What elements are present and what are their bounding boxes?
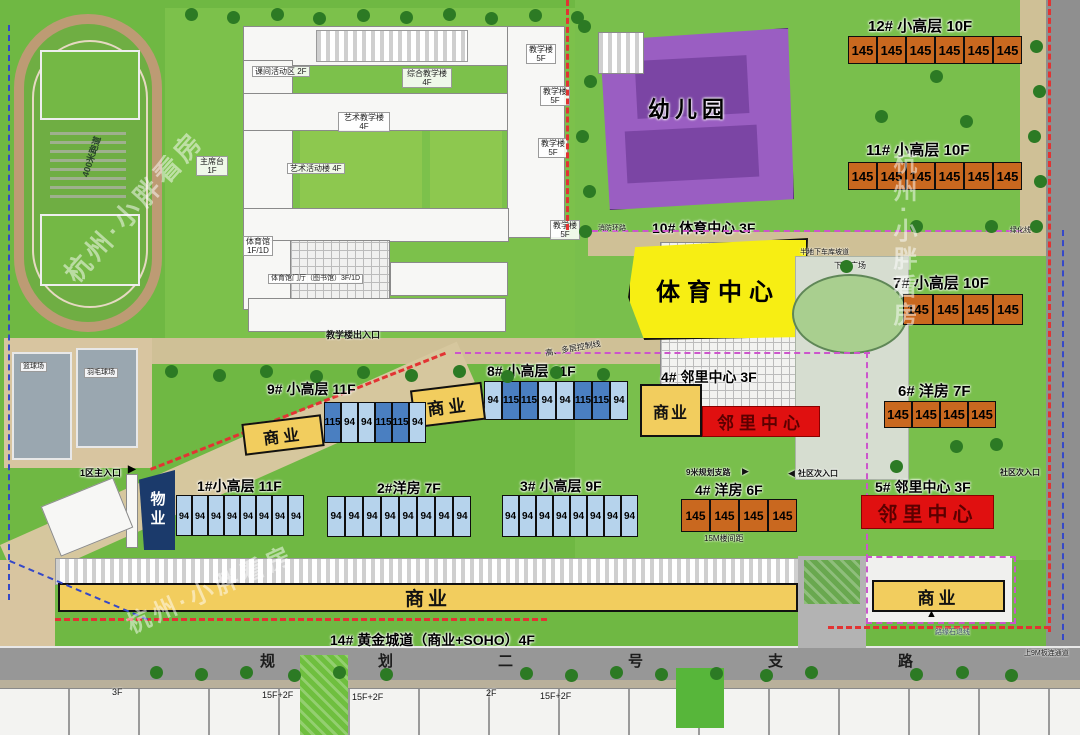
teach-text: 教学楼 (541, 139, 565, 148)
teach-text: 教学楼 (553, 221, 577, 230)
building-1-units: 9494949494949494 (176, 495, 304, 536)
tree-row-mid-road (165, 365, 178, 378)
unit-cell: 145 (681, 499, 710, 532)
board9m-label: 上9M板连通道 (1024, 648, 1069, 658)
building-1-label: 1#小高层 11F (197, 476, 282, 496)
curb-line-label: 路缘石退线 (935, 627, 970, 637)
school-label-teach-3: 教学楼5F (538, 138, 568, 158)
building-3-label: 3# 小高层 9F (520, 476, 602, 496)
school-label-gym: 体育馆1F/1D (243, 236, 273, 256)
unit-cell: 94 (363, 496, 381, 537)
red-line-kindergarten-west (566, 0, 569, 230)
blue-line-west (8, 25, 10, 600)
unit-cell: 145 (993, 36, 1022, 64)
south-green-plaza (300, 655, 348, 735)
arrow-up-marker: ▲ (926, 608, 937, 620)
unit-cell: 145 (993, 162, 1022, 190)
unit-cell: 145 (739, 499, 768, 532)
school-building-lower (243, 208, 509, 242)
teach-floor: 5F (560, 230, 569, 239)
soho-band (55, 558, 802, 585)
unit-cell: 94 (610, 381, 628, 420)
unit-cell: 115 (502, 381, 520, 420)
court-label-badminton: 羽毛球场 (84, 368, 118, 378)
unit-cell: 94 (341, 402, 358, 443)
teach-floor: 5F (550, 96, 559, 105)
neighborhood-4-box: 邻里中心 (702, 406, 820, 437)
court-label-basketball: 篮球场 (20, 362, 47, 372)
unit-cell: 94 (345, 496, 363, 537)
unit-cell: 94 (288, 495, 304, 536)
building-7-units: 145145145145 (903, 294, 1023, 325)
school-label-art-teach: 艺术教学楼4F (338, 112, 390, 132)
commercial-right-box: 商业 (872, 580, 1005, 612)
main-entrance-arrow: ▶ (128, 464, 136, 475)
unit-cell: 94 (621, 495, 638, 537)
art-teach-floor: 4F (359, 122, 368, 131)
unit-cell: 145 (848, 36, 877, 64)
teach-floor: 5F (548, 148, 557, 157)
unit-cell: 94 (240, 495, 256, 536)
south-road (0, 646, 1080, 684)
school-label-complex: 综合教学楼 4F (402, 68, 452, 88)
road9m-label: 9米规划支路 (686, 467, 730, 478)
building-9-units: 115949411511594 (324, 402, 426, 443)
building-6-units: 145145145145 (884, 401, 996, 428)
unit-cell: 115 (520, 381, 538, 420)
school-label-activity: 课间活动区 2F (252, 66, 310, 77)
unit-cell: 145 (963, 294, 993, 325)
building-4-units: 145145145145 (681, 499, 797, 532)
main-entrance-label: 1区主入口 (80, 466, 121, 479)
unit-cell: 94 (519, 495, 536, 537)
side-entrance-mid-label: 社区次入口 (798, 468, 838, 479)
unit-cell: 145 (933, 294, 963, 325)
unit-cell: 94 (409, 402, 426, 443)
school-building-left (243, 60, 293, 212)
school-label-teach-1: 教学楼5F (526, 44, 556, 64)
property-block: 物业 (139, 470, 175, 550)
south-sidewalk (0, 680, 1080, 688)
unit-cell: 94 (435, 496, 453, 537)
tree-cluster-right-community (930, 70, 943, 83)
spacing-15m-label: 15M楼间距 (704, 533, 744, 544)
unit-cell: 94 (587, 495, 604, 537)
unit-cell: 94 (553, 495, 570, 537)
garage-ramp-label: 半地下车库坡道 (800, 247, 849, 257)
unit-cell: 145 (912, 401, 940, 428)
unit-cell: 94 (208, 495, 224, 536)
school-label-exit: 教学楼出入口 (326, 328, 380, 341)
unit-cell: 94 (484, 381, 502, 420)
tree-row-south (150, 666, 163, 679)
building-12-label: 12# 小高层 10F (868, 15, 972, 36)
unit-cell: 145 (848, 162, 877, 190)
building-12-units: 145145145145145145 (848, 36, 1022, 64)
south-bld-15f-c: 15F+2F (540, 691, 571, 701)
unit-cell: 145 (877, 36, 906, 64)
neighborhood-5-box: 邻里中心 (861, 495, 994, 529)
road-name-char: 划 (378, 650, 393, 671)
teach-floor: 5F (536, 54, 545, 63)
unit-cell: 94 (224, 495, 240, 536)
road-name-char: 路 (898, 650, 913, 671)
south-bld-15f-a: 15F+2F (262, 690, 293, 700)
school-label-art-act: 艺术活动楼 4F (287, 163, 345, 174)
unit-cell: 94 (327, 496, 345, 537)
building-4-label: 4# 洋房 6F (695, 480, 763, 500)
school-label-gym-hall: 体育馆门厅（图书馆）3F/1D (268, 274, 363, 284)
fire-lane-label: 消防环路 (598, 223, 626, 233)
school-gym-building (290, 240, 390, 300)
unit-cell: 94 (417, 496, 435, 537)
school-label-stage: 主席台 1F (196, 156, 228, 176)
school-skylight (316, 30, 468, 62)
unit-cell: 145 (993, 294, 1023, 325)
art-teach-text: 艺术教学楼 (344, 113, 384, 122)
court-2 (76, 348, 138, 448)
unit-cell: 145 (964, 36, 993, 64)
building-11-units: 145145145145145145 (848, 162, 1022, 190)
green-line-label: 绿化线 (1010, 225, 1031, 235)
unit-cell: 94 (604, 495, 621, 537)
unit-cell: 94 (176, 495, 192, 536)
track-field-north (40, 50, 140, 120)
school-courtyard-2 (430, 131, 502, 209)
sports-center-name: 体育中心 (656, 272, 780, 307)
road-name-char: 支 (768, 650, 783, 671)
unit-cell: 115 (324, 402, 341, 443)
unit-cell: 145 (964, 162, 993, 190)
goldstreet-label: 14# 黄金城道（商业+SOHO）4F (330, 630, 535, 650)
sunken-plaza-label: 下沉广场 (834, 260, 866, 271)
gym-floor: 1F/1D (247, 246, 269, 255)
south-bld-15f-b: 15F+2F (352, 692, 383, 702)
unit-cell: 145 (940, 401, 968, 428)
teach-text: 教学楼 (529, 45, 553, 54)
unit-cell: 94 (399, 496, 417, 537)
property-label: 物业 (147, 491, 168, 529)
south-bld-3f: 3F (112, 687, 123, 697)
building-2-units: 9494949494949494 (327, 496, 471, 537)
building-6-label: 6# 洋房 7F (898, 380, 971, 401)
tree-column-east (1030, 40, 1043, 53)
topright-road (1020, 0, 1046, 232)
neighborhood-4-commercial: 商业 (640, 384, 702, 437)
unit-cell: 94 (192, 495, 208, 536)
unit-cell: 145 (935, 162, 964, 190)
magenta-line-mid-road (455, 352, 870, 354)
unit-cell: 145 (935, 36, 964, 64)
road-name-char: 规 (260, 650, 275, 671)
school-building-h (390, 262, 508, 296)
magenta-line-north-road (592, 230, 1022, 232)
unit-cell: 115 (574, 381, 592, 420)
road-name-char: 二 (498, 650, 513, 671)
unit-cell: 145 (968, 401, 996, 428)
unit-cell: 115 (592, 381, 610, 420)
building-3-units: 9494949494949494 (502, 495, 638, 537)
unit-cell: 94 (381, 496, 399, 537)
school-label-teach-4: 教学楼5F (550, 220, 580, 240)
unit-cell: 94 (538, 381, 556, 420)
property-annex (126, 474, 138, 548)
unit-cell: 94 (502, 495, 519, 537)
sports-center-block: 体育中心 (628, 238, 808, 340)
unit-cell: 94 (256, 495, 272, 536)
unit-cell: 145 (906, 36, 935, 64)
unit-cell: 94 (570, 495, 587, 537)
site-plan-map: 课间活动区 2F 综合教学楼 4F 艺术教学楼4F 艺术活动楼 4F 教学楼5F… (0, 0, 1080, 735)
road9m-arrow: ▶ (742, 466, 749, 477)
red-line-east (1048, 0, 1051, 632)
kindergarten-service-building (598, 32, 644, 74)
building-8-label: 8# 小高层 11F (487, 361, 576, 381)
side-entrance-east-label: 社区次入口 (1000, 467, 1040, 478)
kindergarten-label: 幼儿园 (648, 92, 729, 124)
building-8-units: 94115115949411511594 (484, 381, 628, 420)
neighborhood-5-label: 5# 邻里中心 3F (875, 477, 971, 497)
tree-row-campus-top (185, 8, 198, 21)
building-9-label: 9# 小高层 11F (267, 379, 356, 399)
gym-text: 体育馆 (246, 237, 270, 246)
kindergarten-inner-2 (625, 125, 760, 184)
south-green-square (676, 668, 724, 728)
unit-cell: 145 (768, 499, 797, 532)
unit-cell: 94 (272, 495, 288, 536)
unit-cell: 94 (536, 495, 553, 537)
unit-cell: 145 (710, 499, 739, 532)
road-name-char: 号 (628, 650, 643, 671)
watermark: 杭州·小胖看房 (885, 150, 920, 330)
side-entrance-arrow: ◀ (788, 468, 795, 479)
south-bld-2f: 2F (486, 688, 497, 698)
unit-cell: 145 (884, 401, 912, 428)
unit-cell: 94 (453, 496, 471, 537)
school-building-south (248, 298, 506, 332)
unit-cell: 94 (358, 402, 375, 443)
sports-center-label: 10# 体育中心 3F (652, 218, 755, 238)
tree-column-mid (578, 20, 591, 33)
unit-cell: 115 (375, 402, 392, 443)
building-2-label: 2#洋房 7F (377, 478, 441, 498)
blue-line-east (1062, 230, 1064, 640)
unit-cell: 115 (392, 402, 409, 443)
teach-text: 教学楼 (543, 87, 567, 96)
footbridge-green (804, 560, 860, 604)
unit-cell: 94 (556, 381, 574, 420)
